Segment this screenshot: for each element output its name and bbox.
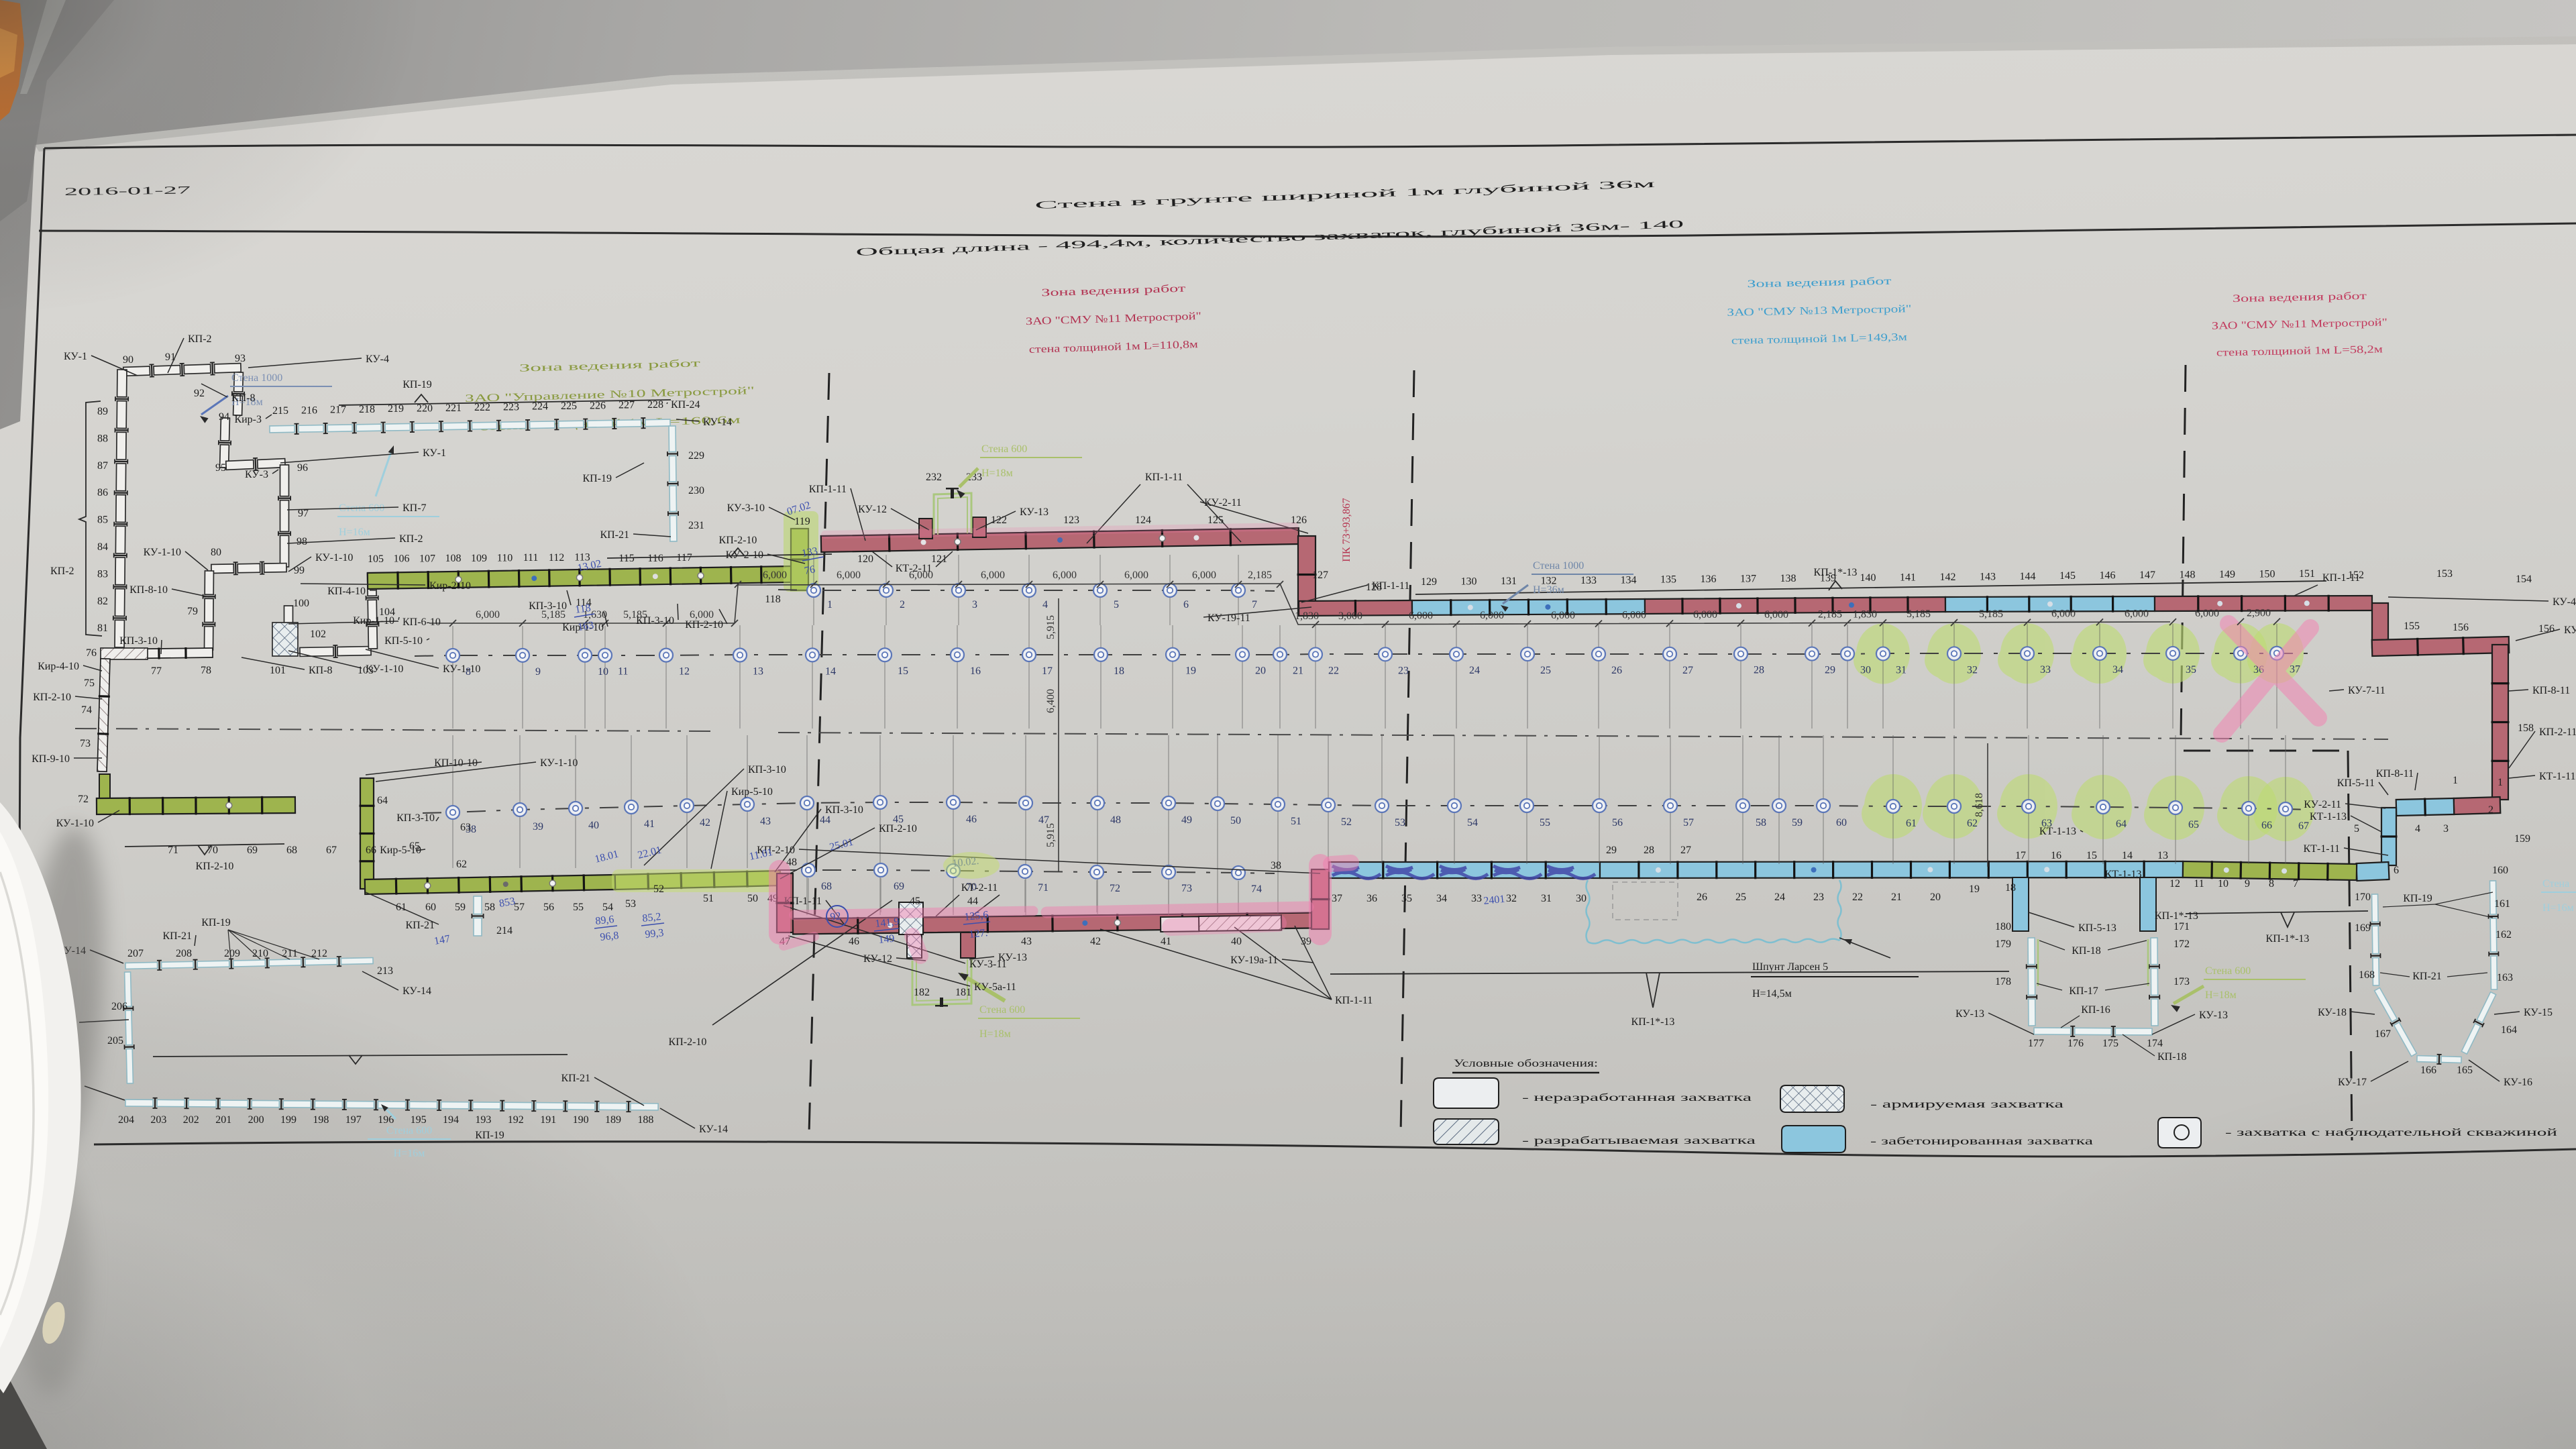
svg-text:КП-2-10: КП-2-10: [196, 861, 234, 872]
svg-text:118: 118: [574, 602, 592, 616]
svg-text:32: 32: [1506, 893, 1517, 904]
svg-text:61: 61: [1906, 818, 1917, 829]
svg-text:154: 154: [2516, 574, 2532, 585]
svg-text:51: 51: [1291, 816, 1301, 827]
svg-text:172: 172: [2173, 938, 2190, 950]
svg-text:31: 31: [1896, 664, 1907, 676]
svg-text:6,000: 6,000: [837, 570, 861, 581]
svg-text:КП-3-10: КП-3-10: [396, 812, 435, 824]
svg-text:170: 170: [2355, 892, 2371, 903]
svg-text:Н=18м: Н=18м: [981, 468, 1013, 479]
svg-text:КУ-1-10: КУ-1-10: [366, 663, 403, 675]
svg-text:КУ-3-11: КУ-3-11: [969, 959, 1007, 970]
svg-text:КП-3-10: КП-3-10: [748, 764, 786, 775]
svg-text:КП-4-10: КП-4-10: [327, 586, 366, 597]
svg-text:76: 76: [86, 647, 97, 659]
svg-text:224: 224: [532, 401, 548, 413]
svg-text:КУ-12: КУ-12: [858, 504, 887, 515]
svg-text:175: 175: [2102, 1038, 2118, 1049]
svg-text:80: 80: [211, 547, 221, 558]
svg-text:77: 77: [151, 665, 162, 677]
svg-text:226: 226: [590, 400, 606, 411]
svg-text:87: 87: [97, 460, 108, 472]
svg-text:89,6: 89,6: [595, 914, 615, 927]
svg-text:КТ-1-13: КТ-1-13: [2039, 826, 2076, 837]
svg-text:110: 110: [497, 553, 513, 564]
svg-text:КП-1*-13: КП-1*-13: [2155, 910, 2198, 922]
svg-text:14: 14: [2122, 850, 2133, 861]
svg-text:КУ-1-10: КУ-1-10: [144, 547, 181, 558]
svg-text:23: 23: [1398, 665, 1409, 676]
svg-text:91: 91: [165, 352, 176, 363]
svg-text:29: 29: [1825, 665, 1835, 676]
svg-text:55: 55: [1540, 817, 1550, 828]
svg-text:КП-2-10: КП-2-10: [33, 692, 71, 703]
svg-text:83: 83: [97, 568, 108, 580]
svg-text:5,915: 5,915: [1045, 615, 1057, 639]
svg-text:21: 21: [1891, 892, 1902, 903]
svg-text:129: 129: [1421, 576, 1437, 588]
svg-text:147: 147: [2139, 570, 2155, 581]
svg-text:КУ-1-10: КУ-1-10: [315, 552, 353, 563]
svg-text:3: 3: [972, 599, 977, 610]
svg-text:6,000: 6,000: [2051, 608, 2076, 620]
svg-text:39: 39: [533, 821, 543, 833]
svg-text:8,618: 8,618: [1974, 793, 1985, 817]
svg-text:КП-1-11: КП-1-11: [1372, 580, 1409, 592]
svg-text:КП-18: КП-18: [2072, 945, 2101, 957]
svg-text:Н=16м: Н=16м: [339, 527, 370, 538]
svg-text:35: 35: [1401, 893, 1412, 904]
svg-text:1: 1: [2453, 775, 2458, 786]
svg-text:34: 34: [1436, 893, 1447, 904]
svg-text:209: 209: [224, 948, 240, 959]
svg-text:6: 6: [2394, 865, 2399, 876]
svg-text:41: 41: [1161, 936, 1171, 947]
svg-text:КТ-1-13: КТ-1-13: [2310, 811, 2347, 822]
svg-text:26: 26: [1611, 665, 1622, 676]
svg-text:214: 214: [496, 925, 513, 936]
svg-text:30: 30: [1576, 893, 1587, 904]
svg-text:5: 5: [1114, 599, 1119, 610]
svg-text:6,000: 6,000: [1409, 610, 1433, 621]
svg-text:74: 74: [1251, 883, 1262, 895]
svg-text:48: 48: [1110, 814, 1121, 826]
svg-text:Н=14,5м: Н=14,5м: [1752, 988, 1792, 1000]
svg-text:92: 92: [194, 388, 205, 399]
svg-text:КУ-14: КУ-14: [402, 985, 431, 997]
svg-text:КП-1-11: КП-1-11: [2322, 572, 2360, 584]
svg-text:КУ-1: КУ-1: [64, 351, 87, 362]
svg-text:102: 102: [310, 629, 326, 640]
svg-text:34: 34: [2112, 664, 2123, 676]
svg-text:КП-2: КП-2: [188, 333, 212, 345]
svg-text:174: 174: [2147, 1038, 2163, 1049]
svg-text:164: 164: [2501, 1024, 2517, 1036]
svg-text:188: 188: [637, 1114, 653, 1126]
svg-text:КП-8-11: КП-8-11: [2532, 685, 2570, 696]
svg-text:1,830: 1,830: [1853, 608, 1877, 620]
svg-text:КП-2-10: КП-2-10: [669, 1036, 707, 1048]
svg-text:37: 37: [1332, 893, 1342, 904]
svg-text:КП-1*-13: КП-1*-13: [1631, 1016, 1675, 1028]
svg-text:Н=18м: Н=18м: [2205, 989, 2237, 1001]
svg-text:223: 223: [503, 401, 519, 413]
svg-text:20: 20: [1930, 892, 1941, 903]
svg-text:54: 54: [602, 902, 613, 913]
svg-text:11: 11: [2194, 878, 2204, 890]
svg-text:203: 203: [150, 1114, 166, 1126]
svg-text:КП-2: КП-2: [399, 533, 423, 545]
svg-text:151: 151: [2299, 568, 2315, 580]
svg-text:КУ-19а-11: КУ-19а-11: [1230, 955, 1278, 966]
svg-text:124: 124: [1135, 515, 1151, 526]
svg-text:16: 16: [970, 665, 981, 677]
svg-text:КП-1-11: КП-1-11: [809, 484, 847, 495]
svg-text:66: 66: [366, 845, 376, 856]
svg-text:2: 2: [900, 599, 905, 610]
svg-text:8: 8: [2269, 878, 2274, 890]
svg-text:158: 158: [2518, 722, 2534, 734]
svg-text:45: 45: [910, 896, 920, 907]
svg-text:КП-17: КП-17: [2069, 985, 2098, 997]
svg-text:81: 81: [97, 623, 108, 634]
svg-text:176: 176: [2068, 1038, 2084, 1049]
svg-text:25: 25: [1540, 665, 1551, 676]
svg-text:6,000: 6,000: [1622, 609, 1646, 621]
svg-text:27: 27: [1680, 845, 1691, 856]
svg-text:КУ-18: КУ-18: [2318, 1007, 2347, 1018]
svg-text:КТ-1-13: КТ-1-13: [2104, 869, 2141, 880]
svg-text:43: 43: [760, 816, 771, 827]
svg-text:225: 225: [561, 400, 577, 412]
svg-text:5,915: 5,915: [1045, 823, 1057, 847]
svg-text:КП-2-11: КП-2-11: [2539, 727, 2576, 738]
svg-text:227: 227: [619, 400, 635, 411]
svg-text:213: 213: [377, 965, 393, 977]
svg-text:136: 136: [1701, 574, 1717, 585]
svg-text:75: 75: [84, 678, 95, 689]
svg-text:14: 14: [825, 665, 836, 677]
svg-text:КУ-2: КУ-2: [2564, 625, 2576, 636]
svg-text:Стена 600: Стена 600: [981, 443, 1027, 455]
svg-text:199: 199: [280, 1114, 297, 1126]
svg-text:КП-1-11: КП-1-11: [1335, 995, 1373, 1006]
svg-text:49: 49: [1181, 814, 1192, 826]
svg-text:118: 118: [765, 594, 780, 605]
svg-text:195: 195: [411, 1114, 427, 1126]
svg-text:Кир-2-10: Кир-2-10: [429, 580, 471, 592]
svg-text:КУ-1-10: КУ-1-10: [540, 757, 578, 769]
svg-text:142: 142: [1940, 572, 1956, 583]
svg-text:119: 119: [794, 516, 810, 527]
svg-text:19: 19: [1969, 883, 1980, 895]
svg-text:КУ-1: КУ-1: [423, 447, 446, 459]
svg-text:30: 30: [1860, 665, 1871, 676]
svg-text:73: 73: [80, 738, 91, 749]
svg-text:КП-21: КП-21: [600, 529, 629, 541]
svg-text:Условные обозначения:: Условные обозначения:: [1454, 1058, 1598, 1069]
svg-text:71: 71: [1038, 882, 1049, 894]
svg-text:33: 33: [1471, 893, 1482, 904]
svg-text:Кир-5-10: Кир-5-10: [731, 786, 773, 798]
svg-text:65: 65: [2188, 819, 2199, 830]
svg-text:153: 153: [2436, 568, 2453, 580]
svg-text:28: 28: [1644, 845, 1654, 856]
svg-text:КП-2-10: КП-2-10: [879, 823, 917, 835]
svg-text:26: 26: [1697, 892, 1707, 903]
svg-text:6: 6: [1183, 599, 1189, 610]
svg-text:231: 231: [688, 520, 704, 531]
svg-text:219: 219: [388, 403, 404, 415]
svg-text:197: 197: [345, 1114, 362, 1126]
svg-text:140: 140: [1860, 572, 1876, 584]
svg-text:27: 27: [1682, 665, 1693, 676]
svg-text:6,000: 6,000: [1053, 570, 1077, 581]
svg-text:28: 28: [1754, 665, 1764, 676]
svg-text:ПК 73+93,867: ПК 73+93,867: [1341, 498, 1352, 561]
svg-text:189: 189: [605, 1114, 621, 1126]
svg-text:6,000: 6,000: [1480, 610, 1504, 621]
svg-text:163: 163: [2497, 972, 2513, 983]
svg-text:82: 82: [97, 596, 108, 607]
svg-text:74: 74: [81, 704, 92, 716]
svg-text:4: 4: [1042, 599, 1048, 610]
svg-text:КП-5-13: КП-5-13: [2078, 922, 2116, 934]
svg-text:6,000: 6,000: [2125, 608, 2149, 619]
svg-text:18: 18: [1114, 665, 1124, 677]
svg-text:КУ-4-11: КУ-4-11: [2553, 596, 2576, 608]
svg-text:88: 88: [97, 433, 108, 444]
svg-text:40: 40: [588, 820, 599, 831]
svg-text:56: 56: [1612, 817, 1623, 828]
svg-text:36: 36: [1366, 893, 1377, 904]
svg-text:191: 191: [540, 1114, 556, 1126]
svg-text:169: 169: [2355, 922, 2371, 934]
svg-text:194: 194: [443, 1114, 459, 1126]
svg-text:3,000: 3,000: [1338, 610, 1362, 622]
svg-text:6,000: 6,000: [981, 570, 1005, 581]
svg-text:177: 177: [2028, 1038, 2044, 1049]
svg-text:19: 19: [1185, 665, 1196, 677]
svg-text:68: 68: [286, 845, 297, 856]
svg-text:67: 67: [326, 845, 337, 856]
svg-text:24: 24: [1774, 892, 1785, 903]
svg-text:201: 201: [215, 1114, 231, 1126]
svg-text:58: 58: [484, 902, 495, 913]
svg-text:55: 55: [573, 902, 584, 913]
svg-text:КП-8-10: КП-8-10: [129, 584, 168, 596]
svg-text:5: 5: [2354, 823, 2359, 835]
svg-text:6,000: 6,000: [1693, 609, 1717, 621]
svg-text:217: 217: [330, 405, 346, 416]
svg-text:60: 60: [425, 902, 436, 913]
svg-text:22: 22: [1852, 892, 1863, 903]
svg-text:192: 192: [508, 1114, 524, 1126]
svg-text:108: 108: [445, 553, 462, 564]
svg-text:- захватка с наблюдательной ск: - захватка с наблюдательной скважиной: [2225, 1127, 2558, 1138]
svg-text:68: 68: [821, 881, 832, 892]
svg-text:КУ-14: КУ-14: [703, 417, 732, 428]
svg-text:КУ-13: КУ-13: [2199, 1010, 2228, 1021]
svg-text:216: 216: [301, 405, 317, 416]
svg-text:78: 78: [201, 665, 211, 676]
svg-text:КП-19: КП-19: [582, 473, 612, 484]
svg-text:10: 10: [598, 666, 608, 678]
svg-text:92: 92: [830, 910, 842, 923]
svg-text:38: 38: [1271, 860, 1281, 871]
svg-text:32: 32: [1967, 664, 1978, 676]
svg-text:220: 220: [417, 403, 433, 415]
svg-text:КП-2-10: КП-2-10: [719, 535, 757, 546]
svg-text:96,8: 96,8: [600, 930, 620, 943]
svg-text:3: 3: [2443, 823, 2449, 835]
svg-text:149: 149: [2219, 569, 2235, 580]
svg-text:131: 131: [1501, 576, 1517, 587]
svg-text:173: 173: [2173, 976, 2190, 987]
svg-text:123: 123: [1063, 515, 1079, 526]
svg-text:Кир-5-10: Кир-5-10: [380, 845, 421, 856]
svg-text:24: 24: [1469, 665, 1480, 676]
svg-text:КУ-13: КУ-13: [1020, 506, 1049, 518]
svg-text:- разрабатываемая захватка: - разрабатываемая захватка: [1522, 1135, 1756, 1146]
svg-text:54: 54: [1467, 817, 1478, 828]
svg-text:КП-7: КП-7: [402, 502, 427, 514]
svg-text:6,000: 6,000: [1124, 570, 1148, 581]
svg-text:КП-9-10: КП-9-10: [32, 753, 70, 765]
svg-text:57: 57: [1683, 817, 1694, 828]
svg-text:215: 215: [272, 405, 288, 417]
svg-text:17: 17: [2015, 850, 2026, 861]
svg-text:2,185: 2,185: [1248, 570, 1272, 581]
svg-text:52: 52: [1341, 816, 1352, 828]
svg-text:64: 64: [377, 795, 388, 806]
svg-text:109: 109: [471, 553, 487, 564]
svg-text:35: 35: [2186, 664, 2196, 676]
svg-text:Стена 600: Стена 600: [2205, 965, 2251, 977]
svg-text:58: 58: [1756, 817, 1766, 828]
svg-text:230: 230: [688, 485, 704, 496]
svg-text:КП-21: КП-21: [162, 930, 192, 942]
svg-text:КУ-13: КУ-13: [1955, 1008, 1984, 1020]
svg-text:117: 117: [676, 552, 692, 563]
svg-text:Кир-1-10: Кир-1-10: [353, 615, 394, 627]
svg-text:46: 46: [849, 936, 859, 947]
svg-text:21: 21: [1293, 665, 1303, 677]
svg-text:198: 198: [313, 1114, 329, 1126]
svg-text:КП-8: КП-8: [309, 665, 333, 676]
svg-text:41: 41: [644, 818, 655, 830]
svg-text:КУ-2-11: КУ-2-11: [1204, 497, 1242, 508]
svg-text:98: 98: [297, 536, 307, 547]
svg-text:62: 62: [456, 859, 467, 870]
svg-text:2401: 2401: [1483, 894, 1506, 907]
svg-text:44: 44: [820, 814, 830, 826]
svg-text:17: 17: [1042, 665, 1053, 677]
svg-text:90: 90: [123, 354, 133, 366]
svg-text:9: 9: [2245, 878, 2250, 890]
svg-text:144: 144: [2020, 571, 2036, 582]
svg-text:КП-19: КП-19: [2403, 893, 2432, 904]
svg-text:40: 40: [1231, 936, 1242, 947]
svg-text:85: 85: [97, 515, 108, 526]
svg-text:КП-3-10: КП-3-10: [636, 615, 674, 627]
svg-text:9: 9: [535, 666, 541, 678]
svg-text:12: 12: [2169, 878, 2180, 890]
svg-text:6,000: 6,000: [2195, 608, 2219, 619]
svg-text:162: 162: [2495, 929, 2512, 941]
svg-text:6,000: 6,000: [1192, 570, 1216, 581]
svg-text:КП-21: КП-21: [2412, 971, 2442, 982]
svg-text:Стена 1000: Стена 1000: [1533, 560, 1584, 572]
svg-text:Стена 600: Стена 600: [386, 1125, 432, 1136]
svg-text:232: 232: [926, 472, 942, 483]
svg-text:182: 182: [914, 987, 930, 998]
svg-text:179: 179: [1995, 938, 2011, 950]
svg-text:56: 56: [543, 902, 554, 913]
svg-text:42: 42: [700, 817, 710, 828]
svg-text:2,900: 2,900: [2247, 608, 2271, 619]
svg-text:96: 96: [297, 462, 308, 474]
svg-text:228: 228: [647, 399, 663, 411]
svg-text:1,830: 1,830: [1295, 610, 1319, 622]
svg-text:23: 23: [1813, 892, 1824, 903]
svg-text:64: 64: [2116, 818, 2127, 830]
svg-text:161: 161: [2494, 898, 2510, 910]
svg-text:43: 43: [1021, 936, 1032, 947]
svg-text:КУ-14: КУ-14: [699, 1124, 728, 1135]
svg-text:Стена 1000: Стена 1000: [231, 372, 282, 384]
svg-text:178: 178: [1995, 976, 2011, 987]
svg-text:181: 181: [955, 987, 971, 998]
svg-text:130: 130: [1461, 576, 1477, 587]
svg-text:13: 13: [2157, 850, 2168, 861]
svg-text:КП-1*-13: КП-1*-13: [1814, 567, 1858, 578]
svg-text:155: 155: [2404, 621, 2420, 632]
svg-text:134: 134: [1621, 574, 1637, 586]
svg-text:КТ-1-11: КТ-1-11: [2539, 771, 2576, 782]
svg-text:94: 94: [219, 411, 229, 423]
svg-text:- неразработанная захватка: - неразработанная захватка: [1522, 1092, 1752, 1104]
svg-text:44: 44: [967, 896, 978, 907]
svg-text:127.: 127.: [969, 927, 989, 941]
svg-text:КП-3-10: КП-3-10: [825, 804, 863, 816]
svg-text:6,000: 6,000: [1764, 609, 1788, 621]
svg-text:156: 156: [2453, 622, 2469, 633]
svg-text:61: 61: [396, 902, 407, 913]
svg-text:31: 31: [1541, 893, 1552, 904]
svg-text:76: 76: [804, 563, 816, 577]
svg-text:КУ-7-11: КУ-7-11: [2348, 685, 2385, 696]
svg-text:99,3: 99,3: [645, 927, 665, 941]
svg-text:86: 86: [97, 487, 108, 498]
svg-text:165: 165: [2457, 1065, 2473, 1076]
svg-text:22: 22: [1328, 665, 1339, 676]
svg-text:КУ-19-11: КУ-19-11: [1207, 612, 1250, 624]
svg-text:5,185: 5,185: [1907, 608, 1931, 620]
svg-text:50: 50: [1230, 815, 1241, 826]
svg-text:КТ-2-11: КТ-2-11: [961, 882, 998, 894]
svg-text:50: 50: [747, 893, 758, 904]
svg-text:КП-2: КП-2: [50, 566, 74, 577]
svg-text:2: 2: [2488, 804, 2493, 816]
svg-text:КТ-2-11: КТ-2-11: [896, 563, 932, 574]
svg-text:146: 146: [2100, 570, 2116, 582]
svg-text:20: 20: [1255, 665, 1266, 677]
svg-text:66: 66: [2261, 820, 2272, 831]
svg-text:163: 163: [577, 620, 594, 633]
svg-text:107: 107: [419, 553, 435, 564]
